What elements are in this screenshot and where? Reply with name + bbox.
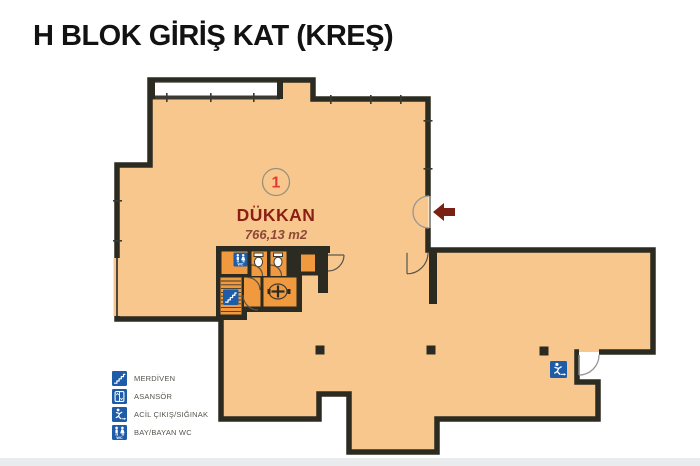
legend-item-asansor: ASANSÖR bbox=[112, 387, 208, 405]
core-wall-stub bbox=[318, 248, 328, 293]
legend-label: BAY/BAYAN WC bbox=[134, 428, 192, 437]
stairs-icon bbox=[223, 290, 239, 306]
legend: MERDİVEN ASANSÖR ACİL ÇIKIŞ/SIĞINAK BAY/… bbox=[112, 369, 208, 441]
legend-label: ACİL ÇIKIŞ/SIĞINAK bbox=[134, 410, 208, 419]
unit-number: 1 bbox=[272, 175, 281, 192]
wc-icon bbox=[234, 253, 248, 267]
floor-plan: WC bbox=[0, 0, 700, 466]
entrance-arrow bbox=[433, 203, 455, 221]
legend-label: MERDİVEN bbox=[134, 374, 175, 383]
floor-plan-page: H BLOK GİRİŞ KAT (KREŞ) bbox=[0, 0, 700, 466]
wing-wall-stub bbox=[429, 251, 437, 304]
balcony-recess bbox=[149, 79, 283, 102]
toilet-fixture-1 bbox=[254, 253, 263, 267]
unit-area: 766,13 m2 bbox=[245, 227, 308, 242]
legend-label: ASANSÖR bbox=[134, 392, 172, 401]
toilet-fixture-2 bbox=[274, 253, 283, 267]
left-glazed-wall bbox=[114, 258, 121, 316]
legend-item-merdiven: MERDİVEN bbox=[112, 369, 208, 387]
core-corridor bbox=[244, 278, 261, 307]
legend-item-bay-bayan-wc: BAY/BAYAN WC bbox=[112, 423, 208, 441]
unit-name: DÜKKAN bbox=[237, 205, 316, 225]
exit-door-arc bbox=[579, 355, 599, 375]
emergency-exit-icon bbox=[112, 407, 127, 422]
emergency-exit bbox=[579, 349, 599, 376]
footer-band bbox=[0, 458, 700, 466]
shaft bbox=[299, 253, 317, 274]
stairs-icon bbox=[112, 371, 127, 386]
elevator-icon bbox=[112, 389, 127, 404]
wc-icon bbox=[112, 425, 127, 440]
emergency-exit-icon bbox=[550, 361, 567, 378]
legend-item-acil-cikis: ACİL ÇIKIŞ/SIĞINAK bbox=[112, 405, 208, 423]
